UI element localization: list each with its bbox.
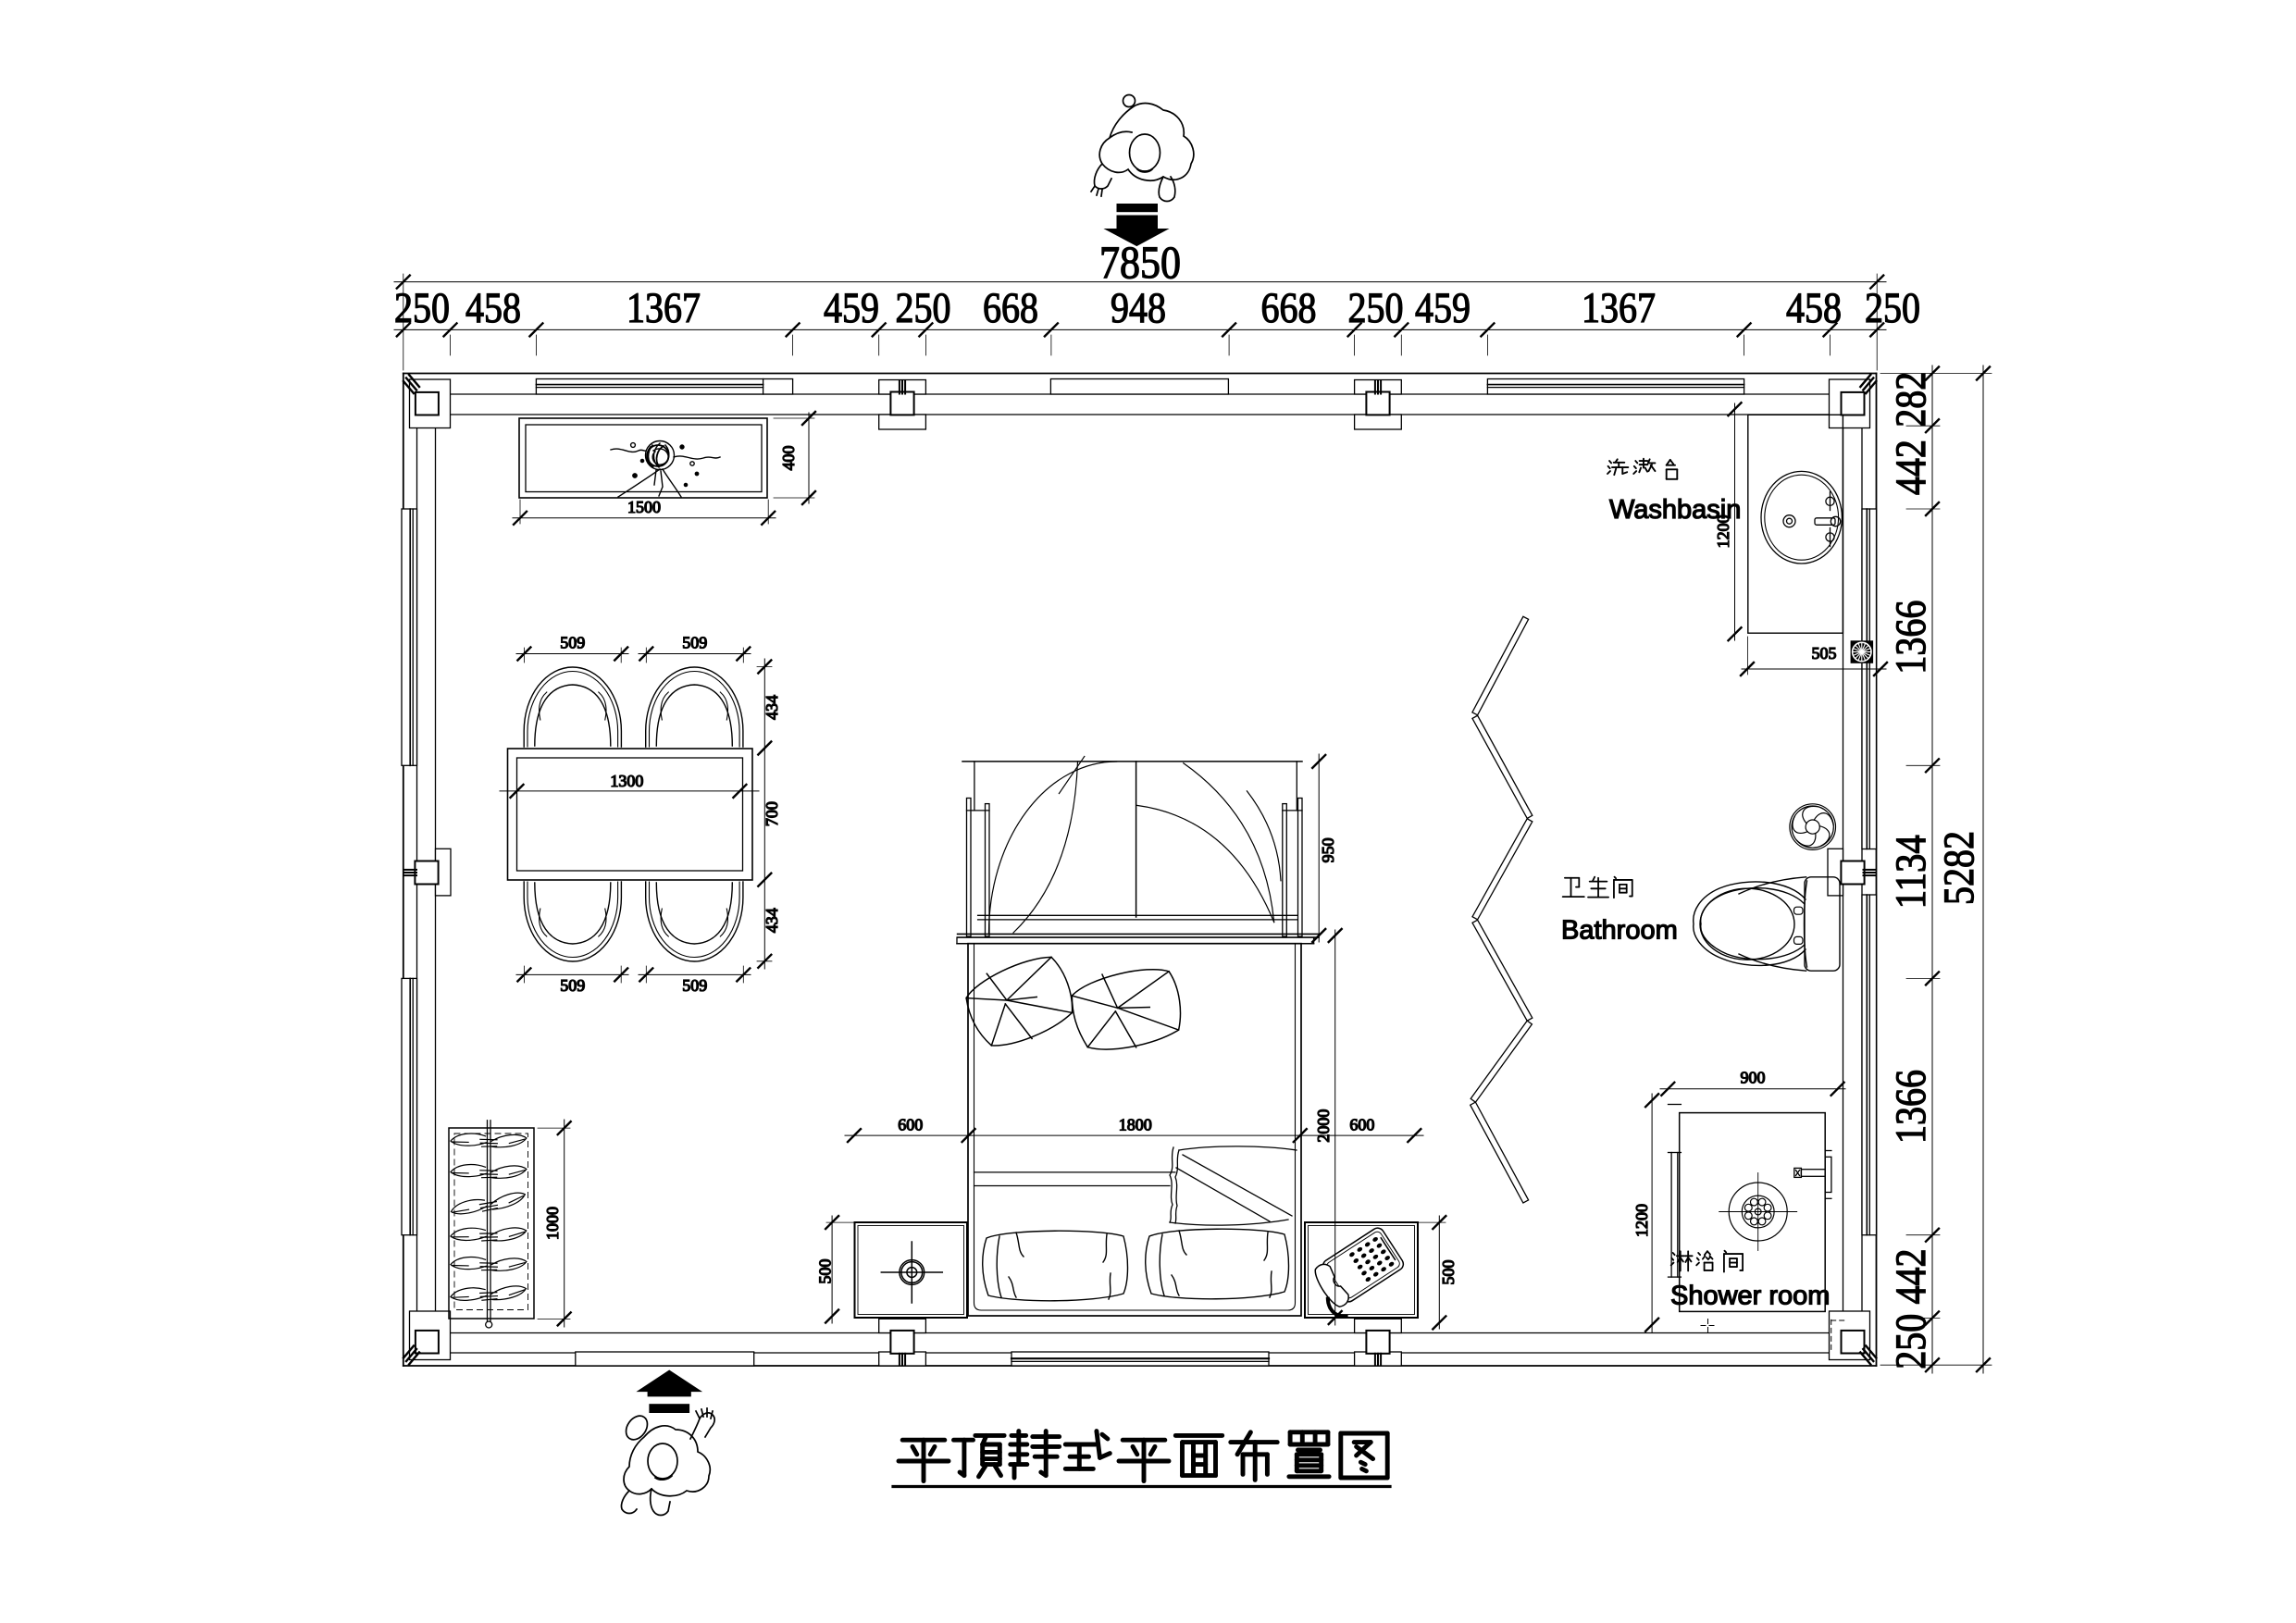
svg-text:Shower room: Shower room (1670, 1282, 1830, 1311)
svg-text:600: 600 (1349, 1116, 1374, 1134)
svg-text:1367: 1367 (627, 284, 701, 332)
svg-text:509: 509 (560, 976, 585, 995)
svg-text:1000: 1000 (543, 1207, 562, 1240)
svg-text:1367: 1367 (1582, 284, 1656, 332)
svg-text:434: 434 (763, 908, 781, 933)
svg-text:442: 442 (1887, 440, 1935, 495)
svg-text:459: 459 (824, 284, 879, 332)
svg-text:250: 250 (1348, 284, 1404, 332)
svg-text:2000: 2000 (1314, 1109, 1333, 1143)
svg-text:1800: 1800 (1119, 1116, 1152, 1134)
svg-text:250: 250 (1865, 284, 1920, 332)
svg-text:250: 250 (896, 284, 951, 332)
svg-text:509: 509 (682, 976, 707, 995)
svg-text:500: 500 (1439, 1260, 1458, 1285)
svg-text:509: 509 (682, 634, 707, 652)
svg-text:434: 434 (763, 695, 781, 720)
svg-text:500: 500 (816, 1259, 835, 1284)
svg-text:600: 600 (898, 1116, 923, 1134)
svg-text:1200: 1200 (1632, 1204, 1651, 1237)
svg-text:1500: 1500 (627, 498, 661, 516)
svg-text:Washbasin: Washbasin (1609, 495, 1741, 525)
svg-text:1134: 1134 (1887, 835, 1935, 909)
svg-text:400: 400 (779, 446, 798, 471)
svg-text:1366: 1366 (1887, 601, 1935, 675)
svg-text:282: 282 (1887, 372, 1935, 427)
svg-text:948: 948 (1111, 284, 1166, 332)
svg-text:459: 459 (1415, 284, 1471, 332)
svg-text:Bathroom: Bathroom (1561, 916, 1678, 946)
svg-text:700: 700 (763, 801, 781, 826)
svg-text:250: 250 (394, 284, 450, 332)
svg-text:900: 900 (1741, 1069, 1766, 1087)
svg-text:1300: 1300 (610, 772, 643, 790)
svg-text:505: 505 (1812, 644, 1837, 663)
svg-text:458: 458 (465, 284, 521, 332)
svg-text:5282: 5282 (1935, 831, 1983, 905)
svg-text:442: 442 (1887, 1249, 1935, 1305)
svg-text:1366: 1366 (1887, 1070, 1935, 1144)
svg-text:668: 668 (1261, 284, 1317, 332)
svg-text:509: 509 (560, 634, 585, 652)
svg-text:250: 250 (1887, 1314, 1935, 1369)
svg-text:950: 950 (1319, 837, 1337, 862)
svg-text:668: 668 (983, 284, 1038, 332)
svg-text:458: 458 (1786, 284, 1842, 332)
